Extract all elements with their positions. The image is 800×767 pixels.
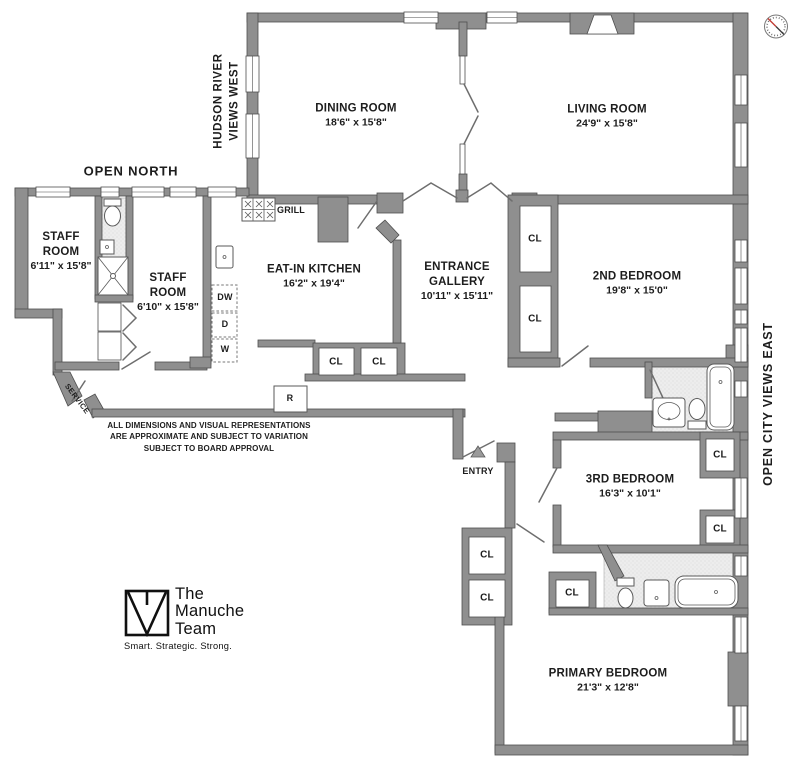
closet-label: CL bbox=[713, 523, 727, 536]
sink-icon bbox=[100, 240, 114, 254]
sink-icon bbox=[653, 398, 685, 427]
west-exposure-label: HUDSON RIVER VIEWS WEST bbox=[211, 53, 242, 148]
compass-icon bbox=[765, 15, 788, 38]
closet-label: CL bbox=[713, 449, 727, 462]
closet-label: CL bbox=[480, 549, 494, 562]
bathtub-icon bbox=[707, 364, 734, 430]
room-label-staff-room-1: STAFF ROOM 6'11" x 15'8" bbox=[30, 230, 91, 274]
room-label-staff-room-2: STAFF ROOM 6'10" x 15'8" bbox=[137, 271, 199, 315]
room-label-living: LIVING ROOM 24'9" x 15'8" bbox=[567, 103, 647, 132]
east-exposure-label: OPEN CITY VIEWS EAST bbox=[760, 322, 776, 486]
dishwasher-label: DW bbox=[217, 292, 232, 304]
toilet-icon bbox=[104, 199, 121, 226]
closet-label: CL bbox=[329, 356, 343, 369]
room-label-2nd-bedroom: 2ND BEDROOM 19'8" x 15'0" bbox=[593, 270, 681, 299]
brand-name: The Manuche Team bbox=[175, 586, 244, 638]
closet-label: CL bbox=[528, 313, 542, 326]
room-label-kitchen: EAT-IN KITCHEN 16'2" x 19'4" bbox=[267, 263, 361, 292]
refrigerator-label: R bbox=[287, 393, 294, 405]
room-label-3rd-bedroom: 3RD BEDROOM 16'3" x 10'1" bbox=[586, 473, 674, 502]
toilet-icon bbox=[617, 578, 634, 608]
closet-label: CL bbox=[480, 592, 494, 605]
closet-label: CL bbox=[528, 233, 542, 246]
kitchen-fixtures bbox=[212, 198, 307, 412]
grill-label: GRILL bbox=[277, 205, 305, 217]
bathtub-icon bbox=[675, 576, 738, 608]
dryer-label: D bbox=[222, 319, 229, 331]
stove-icon bbox=[242, 198, 275, 221]
room-label-primary-bedroom: PRIMARY BEDROOM 21'3" x 12'8" bbox=[549, 667, 668, 696]
floor-plan: HUDSON RIVER VIEWS WEST OPEN NORTH OPEN … bbox=[0, 0, 800, 767]
toilet-icon bbox=[688, 399, 706, 430]
north-exposure-label: OPEN NORTH bbox=[84, 164, 179, 181]
washer-label: W bbox=[221, 344, 230, 356]
room-label-entrance-gallery: ENTRANCE GALLERY 10'11" x 15'11" bbox=[421, 260, 493, 304]
room-label-dining: DINING ROOM 18'6" x 15'8" bbox=[315, 102, 396, 131]
entry-label: ENTRY bbox=[462, 466, 493, 478]
sink-icon bbox=[644, 580, 669, 606]
shower-icon bbox=[98, 257, 128, 295]
kitchen-sink-icon bbox=[216, 246, 233, 268]
brand-tagline: Smart. Strategic. Strong. bbox=[124, 641, 232, 651]
floor-plan-drawing bbox=[0, 0, 800, 767]
manuche-logo-icon bbox=[126, 591, 168, 635]
disclaimer: ALL DIMENSIONS AND VISUAL REPRESENTATION… bbox=[107, 420, 310, 454]
closet-label: CL bbox=[565, 587, 579, 600]
closet-label: CL bbox=[372, 356, 386, 369]
